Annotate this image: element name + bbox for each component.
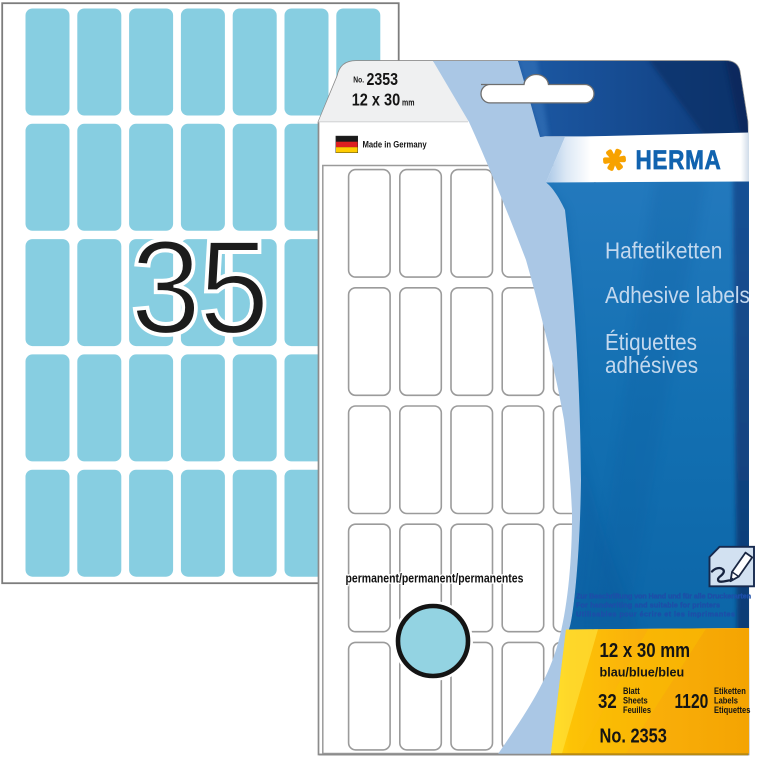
svg-text:1120: 1120	[675, 690, 709, 712]
svg-text:HERMA: HERMA	[636, 146, 722, 175]
svg-text:Adhesive labels: Adhesive labels	[605, 282, 750, 309]
svg-text:12 x 30 mm: 12 x 30 mm	[600, 638, 691, 661]
svg-text:Haftetiketten: Haftetiketten	[605, 237, 722, 263]
svg-text:Utilisables pour écrire et les: Utilisables pour écrire et les imprimant…	[576, 610, 735, 619]
svg-text:permanent/permanent/permanente: permanent/permanent/permanentes	[346, 570, 524, 585]
svg-text:Etiquettes: Etiquettes	[714, 704, 751, 715]
svg-text:blau/blue/bleu: blau/blue/bleu	[600, 664, 685, 679]
svg-text:No. 2353: No. 2353	[600, 724, 667, 747]
svg-text:32: 32	[598, 690, 617, 713]
svg-text:35: 35	[131, 214, 268, 362]
svg-text:12 x 30: 12 x 30	[352, 90, 401, 110]
svg-text:For handwriting and suitable f: For handwriting and suitable for printer…	[576, 601, 720, 610]
svg-text:Made in Germany: Made in Germany	[363, 139, 427, 150]
svg-text:2353: 2353	[367, 71, 399, 90]
svg-text:Zur Beschriftung von Hand und: Zur Beschriftung von Hand und für alle D…	[576, 592, 751, 601]
svg-text:Feuilles: Feuilles	[623, 704, 651, 715]
svg-text:mm: mm	[402, 98, 415, 108]
svg-text:No.: No.	[353, 75, 364, 85]
svg-text:adhésives: adhésives	[605, 352, 698, 379]
